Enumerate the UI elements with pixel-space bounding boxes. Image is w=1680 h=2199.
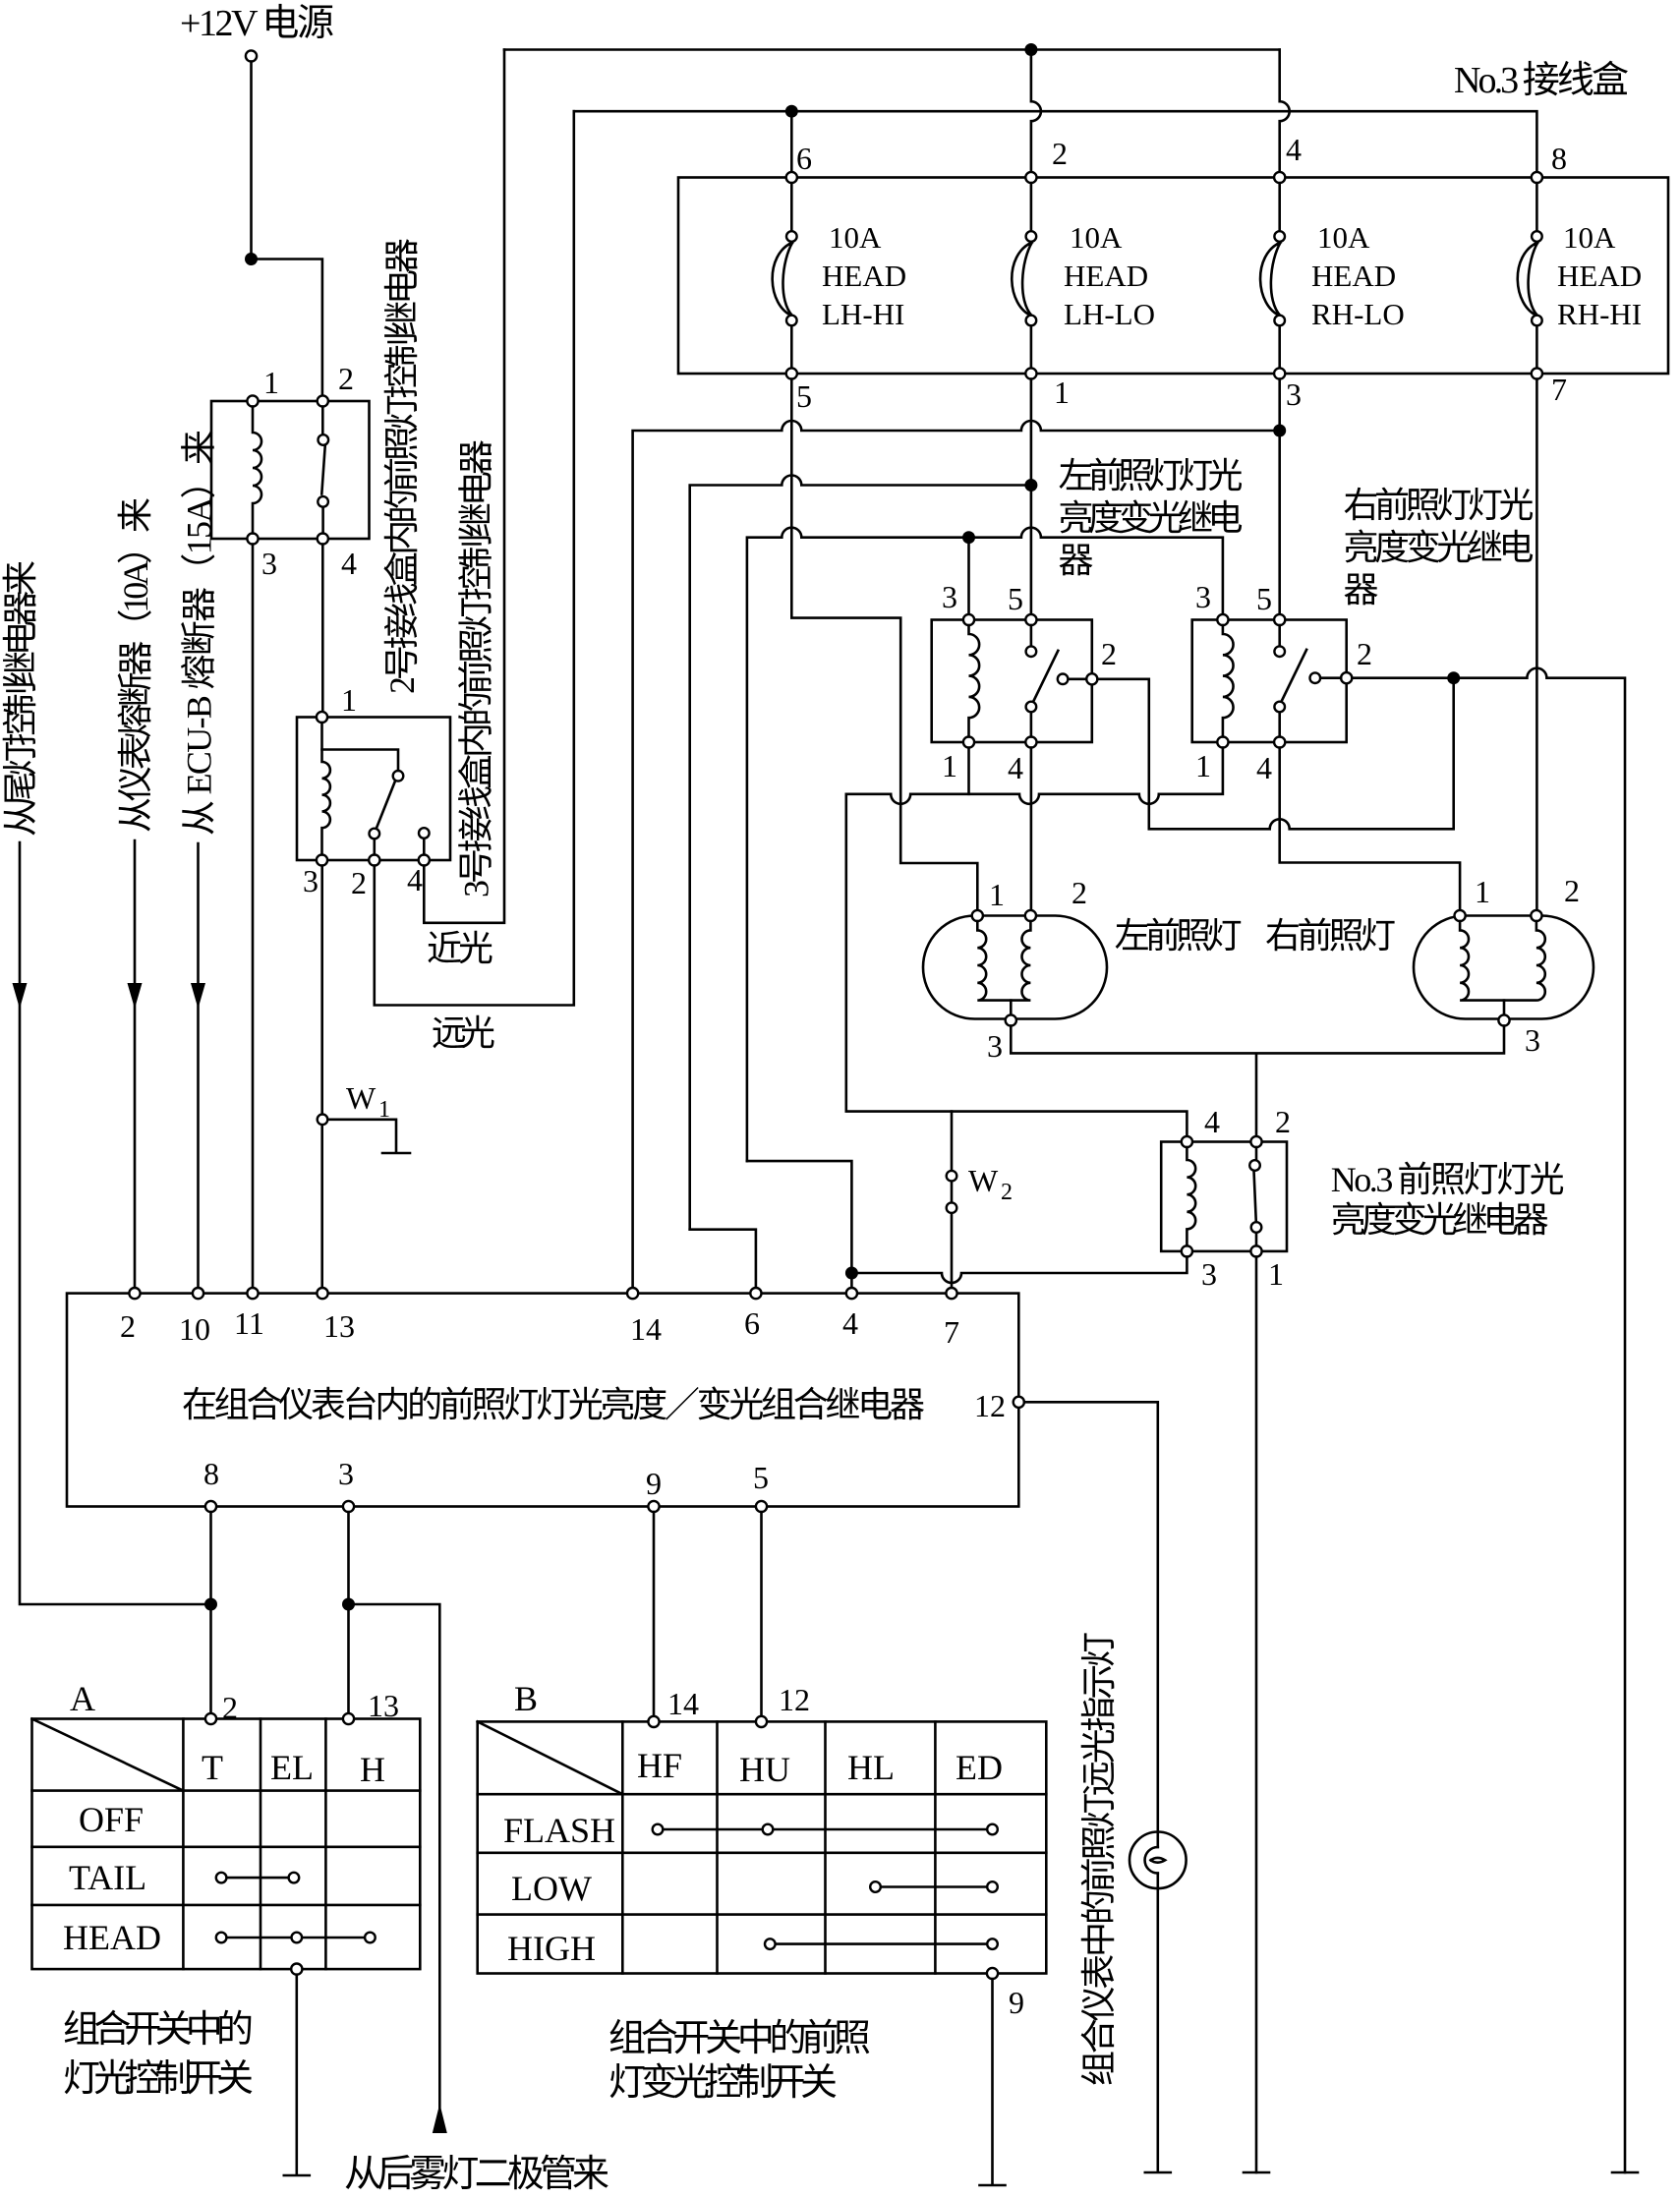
- svg-text:4: 4: [1286, 132, 1302, 167]
- svg-text:10A: 10A: [1563, 220, 1616, 255]
- svg-text:1: 1: [378, 1097, 390, 1123]
- svg-text:HF: HF: [637, 1746, 682, 1785]
- svg-text:左前照灯: 左前照灯: [1115, 916, 1243, 955]
- svg-text:器: 器: [1059, 541, 1094, 580]
- svg-text:No.3 接线盒: No.3 接线盒: [1454, 60, 1629, 101]
- svg-text:4: 4: [842, 1305, 858, 1341]
- svg-text:亮度变光继电器: 亮度变光继电器: [1331, 1200, 1549, 1240]
- svg-text:HEAD: HEAD: [63, 1918, 161, 1957]
- svg-text:从 ECU-B 熔断器（15A）来: 从 ECU-B 熔断器（15A）来: [180, 430, 219, 836]
- svg-text:4: 4: [407, 862, 423, 897]
- svg-text:组合开关中的前照: 组合开关中的前照: [608, 2018, 871, 2059]
- svg-text:9: 9: [646, 1466, 662, 1501]
- svg-text:LH-HI: LH-HI: [822, 297, 904, 331]
- svg-text:LOW: LOW: [511, 1869, 592, 1908]
- svg-text:3: 3: [338, 1456, 354, 1491]
- svg-text:亮度变光继电: 亮度变光继电: [1344, 528, 1535, 567]
- svg-text:右前照灯灯光: 右前照灯灯光: [1344, 486, 1535, 525]
- svg-text:8: 8: [1551, 141, 1567, 176]
- svg-text:B: B: [514, 1679, 538, 1718]
- svg-text:2: 2: [1357, 636, 1372, 671]
- svg-text:FLASH: FLASH: [503, 1811, 615, 1850]
- svg-text:组合仪表中的前照灯远光指示灯: 组合仪表中的前照灯远光指示灯: [1079, 1632, 1119, 2086]
- svg-text:HEAD: HEAD: [1311, 259, 1396, 293]
- svg-text:4: 4: [1204, 1104, 1220, 1139]
- svg-text:LH-LO: LH-LO: [1064, 297, 1155, 331]
- svg-text:在组合仪表台内的前照灯灯光亮度／变光组合继电器: 在组合仪表台内的前照灯灯光亮度／变光组合继电器: [182, 1385, 925, 1424]
- svg-text:1: 1: [942, 748, 957, 783]
- svg-text:从后雾灯二极管来: 从后雾灯二极管来: [344, 2154, 609, 2195]
- svg-text:OFF: OFF: [79, 1800, 144, 1839]
- svg-text:HEAD: HEAD: [1557, 259, 1642, 293]
- svg-text:2: 2: [1275, 1104, 1291, 1139]
- svg-text:器: 器: [1344, 570, 1379, 609]
- svg-text:6: 6: [796, 141, 812, 176]
- svg-text:14: 14: [667, 1686, 699, 1721]
- svg-text:4: 4: [341, 546, 357, 581]
- svg-text:2: 2: [1072, 875, 1087, 910]
- svg-text:组合开关中的: 组合开关中的: [63, 2009, 254, 2051]
- svg-text:10A: 10A: [1317, 220, 1370, 255]
- svg-text:14: 14: [630, 1311, 662, 1347]
- svg-text:2: 2: [1052, 136, 1068, 171]
- svg-text:5: 5: [1256, 581, 1272, 616]
- svg-text:3: 3: [1525, 1022, 1540, 1058]
- svg-text:远光: 远光: [432, 1013, 495, 1053]
- svg-text:RH-LO: RH-LO: [1311, 297, 1405, 331]
- svg-text:No.3 前照灯灯光: No.3 前照灯灯光: [1331, 1160, 1565, 1199]
- svg-text:1: 1: [1195, 748, 1211, 783]
- svg-text:3: 3: [1201, 1256, 1217, 1292]
- svg-text:1: 1: [1475, 874, 1490, 909]
- svg-text:7: 7: [1551, 372, 1567, 407]
- svg-text:H: H: [360, 1750, 385, 1789]
- svg-text:2: 2: [338, 361, 354, 396]
- svg-text:3号接线盒内的前照灯控制继电器: 3号接线盒内的前照灯控制继电器: [457, 439, 496, 897]
- svg-text:3: 3: [987, 1028, 1003, 1064]
- svg-text:1: 1: [989, 877, 1005, 912]
- svg-text:HIGH: HIGH: [507, 1929, 596, 1968]
- svg-text:13: 13: [323, 1308, 355, 1344]
- svg-text:ED: ED: [956, 1748, 1003, 1787]
- svg-text:2号接线盒内的前照灯控制继电器: 2号接线盒内的前照灯控制继电器: [382, 238, 422, 694]
- svg-text:3: 3: [942, 579, 957, 614]
- svg-text:6: 6: [744, 1305, 760, 1341]
- svg-text:12: 12: [974, 1388, 1006, 1423]
- svg-text:9: 9: [1009, 1985, 1024, 2020]
- svg-text:10A: 10A: [829, 220, 882, 255]
- svg-text:1: 1: [1054, 375, 1070, 410]
- svg-text:右前照灯: 右前照灯: [1265, 916, 1396, 955]
- svg-text:4: 4: [1256, 750, 1272, 785]
- svg-text:W: W: [346, 1080, 377, 1116]
- svg-text:10A: 10A: [1070, 220, 1123, 255]
- svg-text:13: 13: [368, 1688, 399, 1723]
- svg-text:1: 1: [341, 682, 357, 718]
- svg-text:A: A: [70, 1679, 95, 1718]
- svg-text:+12V 电源: +12V 电源: [180, 3, 334, 44]
- svg-text:3: 3: [261, 546, 277, 581]
- svg-text:5: 5: [796, 378, 812, 414]
- svg-text:7: 7: [944, 1314, 959, 1350]
- svg-text:HEAD: HEAD: [822, 259, 906, 293]
- svg-text:3: 3: [1286, 376, 1302, 412]
- svg-text:EL: EL: [270, 1748, 314, 1787]
- svg-text:8: 8: [203, 1456, 219, 1491]
- svg-text:5: 5: [753, 1460, 769, 1495]
- svg-text:亮度变光继电: 亮度变光继电: [1059, 498, 1244, 538]
- svg-text:灯光控制开关: 灯光控制开关: [63, 2058, 254, 2100]
- svg-text:左前照灯灯光: 左前照灯灯光: [1059, 456, 1244, 495]
- svg-text:HEAD: HEAD: [1064, 259, 1148, 293]
- svg-text:灯变光控制开关: 灯变光控制开关: [608, 2062, 838, 2104]
- svg-text:近光: 近光: [427, 929, 493, 968]
- svg-text:10: 10: [179, 1311, 210, 1347]
- svg-text:2: 2: [1101, 636, 1117, 671]
- svg-text:2: 2: [1564, 873, 1580, 908]
- svg-text:11: 11: [234, 1305, 264, 1341]
- svg-text:12: 12: [779, 1682, 810, 1717]
- svg-text:从尾灯控制继电器来: 从尾灯控制继电器来: [1, 560, 40, 837]
- svg-text:3: 3: [303, 863, 319, 898]
- svg-text:3: 3: [1195, 579, 1211, 614]
- svg-text:RH-HI: RH-HI: [1557, 297, 1642, 331]
- svg-text:2: 2: [222, 1690, 238, 1725]
- svg-text:从仪表熔断器（10A）来: 从仪表熔断器（10A）来: [116, 497, 155, 833]
- svg-text:W: W: [968, 1163, 999, 1198]
- svg-text:TAIL: TAIL: [69, 1858, 146, 1897]
- svg-text:2: 2: [351, 865, 367, 900]
- svg-text:1: 1: [263, 365, 279, 400]
- svg-text:HL: HL: [847, 1748, 895, 1787]
- svg-text:2: 2: [1001, 1180, 1013, 1205]
- svg-text:5: 5: [1008, 581, 1023, 616]
- svg-text:2: 2: [120, 1308, 136, 1344]
- svg-text:HU: HU: [739, 1750, 790, 1789]
- svg-text:4: 4: [1008, 750, 1023, 785]
- svg-text:1: 1: [1268, 1256, 1284, 1292]
- svg-text:T: T: [202, 1748, 223, 1787]
